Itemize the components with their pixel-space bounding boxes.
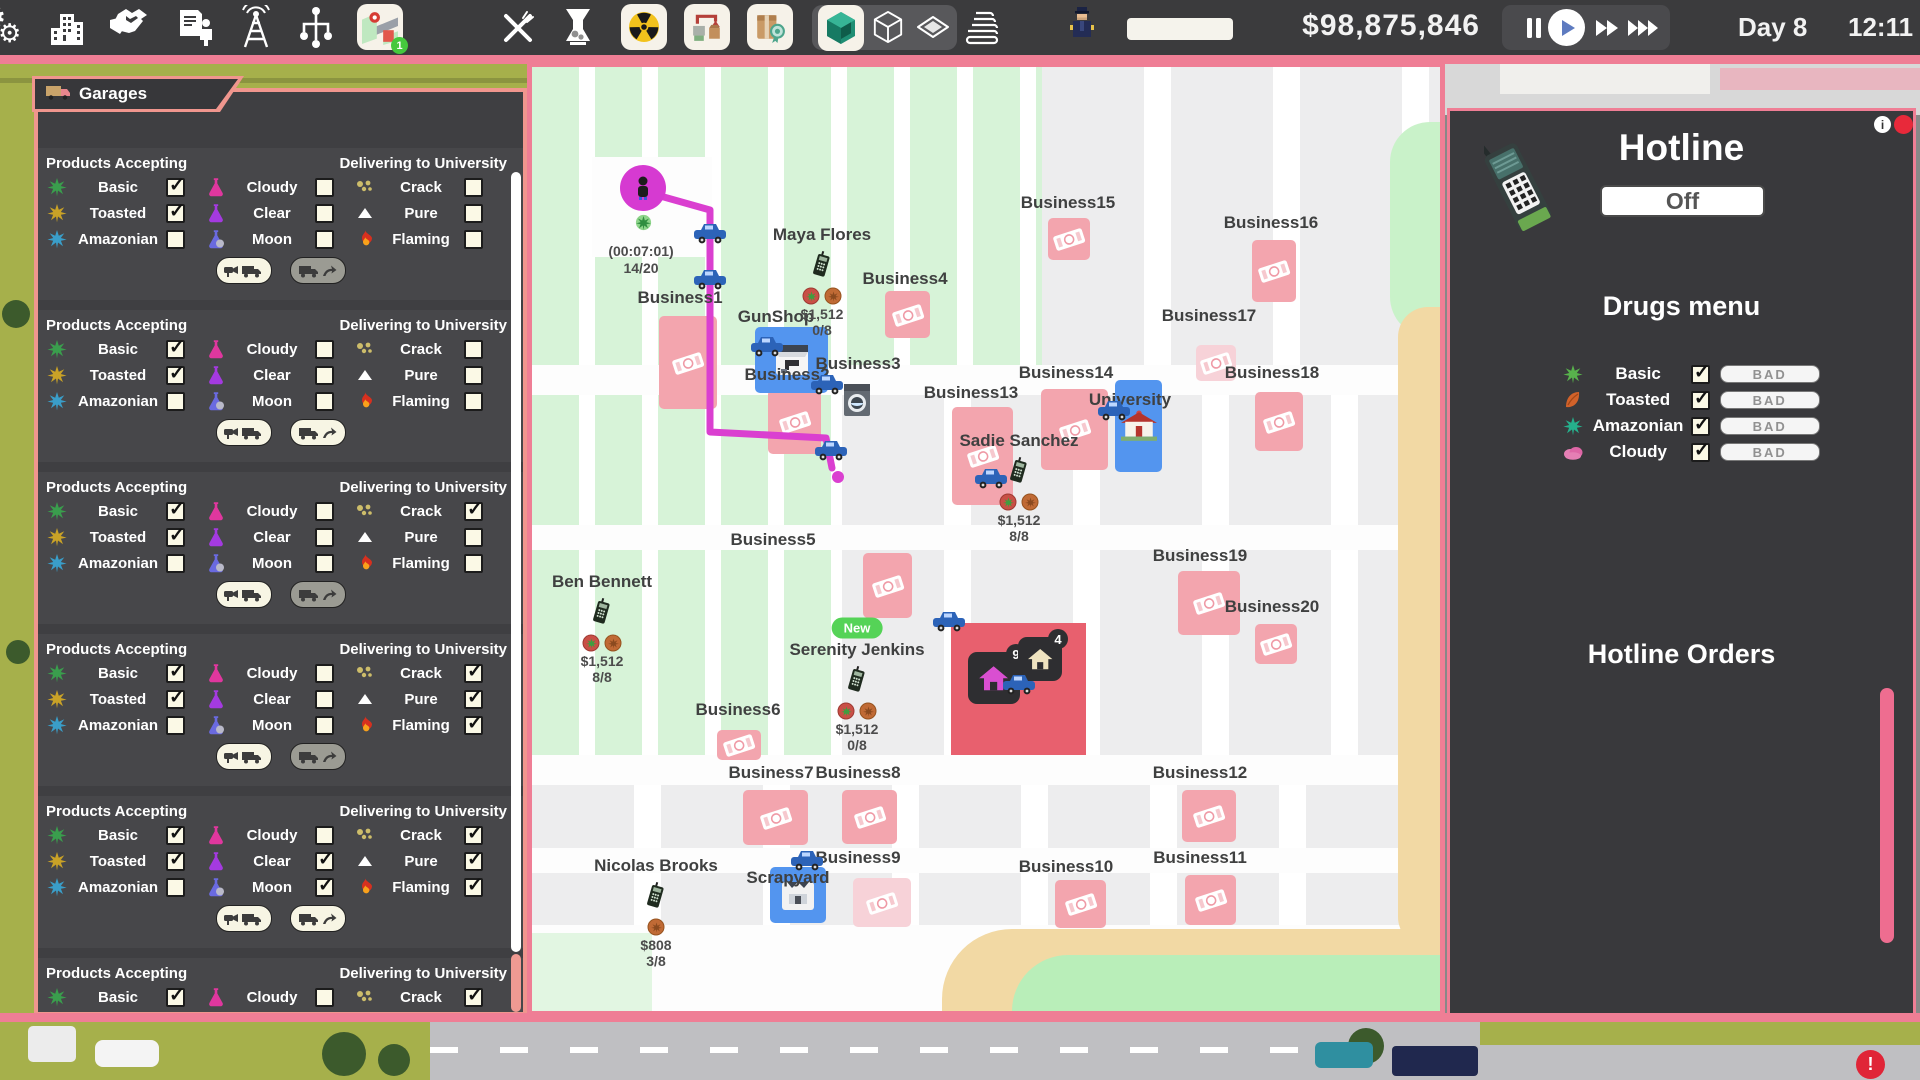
- flask-purple-icon: [203, 527, 229, 547]
- cutlery-icon[interactable]: [500, 10, 536, 46]
- checkbox-pure[interactable]: [464, 852, 483, 871]
- checkbox-crack[interactable]: [464, 826, 483, 845]
- delivering-label: Delivering to University: [339, 803, 507, 820]
- basic-coin-icon: [583, 635, 600, 652]
- products-accepting-label: Products Accepting: [46, 155, 187, 172]
- checkbox-moon[interactable]: [315, 230, 334, 249]
- checkbox-toasted[interactable]: [1691, 391, 1710, 410]
- cube-green-button[interactable]: [818, 5, 864, 51]
- checkbox-clear[interactable]: [315, 366, 334, 385]
- dealer-coins: [838, 703, 877, 720]
- drug-row: AmazonianBAD: [1560, 413, 1820, 439]
- product-label: Clear: [229, 367, 315, 384]
- time-speed-controls: [1502, 5, 1670, 50]
- product-label: Amazonian: [70, 231, 166, 248]
- crumbs-icon: [352, 341, 378, 357]
- flask-moon-icon: [203, 715, 229, 735]
- dealer-ratio: 0/8: [847, 737, 866, 753]
- triangle-icon: [352, 206, 378, 220]
- drug-row: CloudyBAD: [1560, 439, 1820, 465]
- send-truck-button[interactable]: [290, 743, 346, 770]
- crumbs-icon: [352, 989, 378, 1005]
- leaf-green-icon: [44, 663, 70, 683]
- white-car: [95, 1040, 159, 1067]
- basic-coin-icon: [1000, 494, 1017, 511]
- dealer-label: Serenity Jenkins: [789, 640, 924, 660]
- garage-section-header: Products AcceptingDelivering to Universi…: [38, 310, 523, 336]
- checkbox-toasted[interactable]: [166, 528, 185, 547]
- checkbox-amazonian[interactable]: [166, 230, 185, 249]
- product-label: Crack: [378, 179, 464, 196]
- business-label: Business19: [1153, 546, 1248, 566]
- product-icon: [754, 11, 786, 43]
- checkbox-toasted[interactable]: [166, 204, 185, 223]
- hotline-panel: i Hotline Off Drugs menu BasicBADToasted…: [1447, 108, 1916, 1016]
- flask-moon-icon: [203, 553, 229, 573]
- toasted-coin-icon: [825, 288, 842, 305]
- triangle-icon: [352, 854, 378, 868]
- product-label: Basic: [70, 665, 166, 682]
- product-label: Amazonian: [70, 717, 166, 734]
- fastest-forward-button[interactable]: [1624, 5, 1664, 50]
- window-top-border: [0, 55, 1920, 64]
- dealer-label: Ben Bennett: [552, 572, 652, 592]
- world-grass-left: [0, 88, 34, 1018]
- leaf-blue-icon: [44, 391, 70, 411]
- drug-row: ToastedBAD: [1560, 387, 1820, 413]
- dealer-price: $808: [640, 937, 671, 953]
- product-label: Toasted: [70, 205, 166, 222]
- product-label: Clear: [229, 691, 315, 708]
- car-icon: [974, 467, 1008, 494]
- play-button[interactable]: [1548, 9, 1585, 46]
- business-label: Business8: [815, 763, 900, 783]
- checkbox-flaming[interactable]: [464, 716, 483, 735]
- leaf-yellow-icon: [44, 365, 70, 385]
- checkbox-cloudy[interactable]: [1691, 443, 1710, 462]
- dealer-ratio: 3/8: [646, 953, 665, 969]
- leaf-green-icon: [44, 987, 70, 1007]
- garage-section: Products AcceptingDelivering to Universi…: [38, 958, 523, 1012]
- send-truck-button[interactable]: [290, 257, 346, 284]
- dealer-coins: [583, 635, 622, 652]
- camera-truck-button[interactable]: [216, 419, 272, 446]
- checkbox-cloudy[interactable]: [315, 988, 334, 1007]
- product-button[interactable]: [747, 4, 793, 50]
- white-van: [28, 1026, 76, 1062]
- garage-section: Products AcceptingDelivering to Universi…: [38, 148, 523, 300]
- business-label: Business7: [728, 763, 813, 783]
- checkbox-basic[interactable]: [166, 502, 185, 521]
- product-label: Amazonian: [70, 555, 166, 572]
- product-label: Cloudy: [229, 665, 315, 682]
- checkbox-pure[interactable]: [464, 204, 483, 223]
- garage-row: AmazonianMoonFlaming: [38, 388, 523, 414]
- leaf-blue-icon: [44, 553, 70, 573]
- flask-moon-icon: [203, 391, 229, 411]
- garage-row: ToastedClearPure: [38, 686, 523, 712]
- product-label: Pure: [378, 853, 464, 870]
- garages-tab[interactable]: Garages: [32, 76, 244, 112]
- product-label: Crack: [378, 827, 464, 844]
- dealer-price: $1,512: [998, 512, 1041, 528]
- business-label: Business18: [1225, 363, 1320, 383]
- player-timer: (00:07:01): [608, 243, 673, 259]
- checkbox-cloudy[interactable]: [315, 826, 334, 845]
- leaf-green-icon: [44, 825, 70, 845]
- route-destination-dot: [832, 471, 844, 483]
- toasted-coin-icon: [860, 703, 877, 720]
- business-label: Business9: [815, 848, 900, 868]
- product-label: Basic: [70, 179, 166, 196]
- checkbox-amazonian[interactable]: [1691, 417, 1710, 436]
- player-capacity: 14/20: [623, 260, 658, 276]
- crumbs-icon: [352, 827, 378, 843]
- dealer-label: Nicolas Brooks: [594, 856, 718, 876]
- garage-row: BasicCloudyCrack: [38, 336, 523, 362]
- checkbox-crack[interactable]: [464, 664, 483, 683]
- product-label: Toasted: [70, 691, 166, 708]
- police-icon[interactable]: [1068, 6, 1096, 48]
- flask-pink-icon: [203, 663, 229, 683]
- grinder-icon[interactable]: [564, 8, 592, 46]
- garage-buttons: [38, 257, 523, 284]
- garages-scrollbar-track[interactable]: [511, 954, 521, 1012]
- checkbox-flaming[interactable]: [464, 878, 483, 897]
- business-label: Business10: [1019, 857, 1114, 877]
- products-accepting-label: Products Accepting: [46, 803, 187, 820]
- car-icon: [932, 610, 966, 637]
- checkbox-basic[interactable]: [166, 340, 185, 359]
- books-icon[interactable]: [962, 7, 1002, 47]
- drug-label: Amazonian: [1589, 416, 1687, 436]
- business-label: Business13: [924, 383, 1019, 403]
- product-label: Amazonian: [70, 879, 166, 896]
- dealer-ratio: 8/8: [1009, 528, 1028, 544]
- antenna-icon[interactable]: [236, 5, 276, 49]
- product-label: Moon: [229, 393, 315, 410]
- flame-icon: [352, 878, 378, 896]
- fast-forward-button[interactable]: [1592, 5, 1622, 50]
- product-label: Pure: [378, 205, 464, 222]
- flask-moon-icon: [203, 229, 229, 249]
- garage-row: ToastedClearPure: [38, 362, 523, 388]
- product-label: Cloudy: [229, 179, 315, 196]
- garage-row: BasicCloudyCrack: [38, 660, 523, 686]
- road-markings: [430, 1047, 1330, 1053]
- product-label: Flaming: [378, 879, 464, 896]
- flask-pink-icon: [203, 825, 229, 845]
- checkbox-toasted[interactable]: [166, 690, 185, 709]
- basic-coin-icon: [838, 703, 855, 720]
- checkbox-cloudy[interactable]: [315, 340, 334, 359]
- product-label: Crack: [378, 665, 464, 682]
- teal-car: [1315, 1042, 1373, 1068]
- delivering-label: Delivering to University: [339, 479, 507, 496]
- toasted-coin-icon: [648, 919, 665, 936]
- garage-row: ToastedClearPure: [38, 200, 523, 226]
- world-building: [1500, 60, 1710, 94]
- checkbox-cloudy[interactable]: [315, 502, 334, 521]
- processing-icon: [691, 11, 723, 43]
- player-drop-icon: [636, 215, 651, 230]
- checkbox-flaming[interactable]: [464, 554, 483, 573]
- dealer-ratio: 8/8: [592, 669, 611, 685]
- dealer-coins: [803, 288, 842, 305]
- checkbox-flaming[interactable]: [464, 230, 483, 249]
- checkbox-toasted[interactable]: [166, 852, 185, 871]
- cube-white-icon[interactable]: [872, 10, 904, 44]
- dealer-price: $1,512: [581, 653, 624, 669]
- product-label: Flaming: [378, 231, 464, 248]
- checkbox-cloudy[interactable]: [315, 178, 334, 197]
- drug-row: BasicBAD: [1560, 361, 1820, 387]
- leaf-green-icon: [44, 339, 70, 359]
- garage-row: AmazonianMoonFlaming: [38, 226, 523, 252]
- garage-row: BasicCloudyCrack: [38, 498, 523, 524]
- leaf-green-icon: [44, 177, 70, 197]
- bad-button-cloudy[interactable]: BAD: [1720, 443, 1821, 461]
- pause-button[interactable]: [1520, 5, 1548, 50]
- product-label: Crack: [378, 989, 464, 1006]
- checkbox-amazonian[interactable]: [166, 554, 185, 573]
- radiation-button[interactable]: [621, 4, 667, 50]
- money-display: $98,875,846: [1302, 9, 1480, 43]
- tree: [2, 300, 30, 328]
- flask-pink-icon: [203, 987, 229, 1007]
- bad-button-basic[interactable]: BAD: [1720, 365, 1821, 383]
- drugs-menu-title: Drugs menu: [1450, 291, 1913, 322]
- business-label: Business12: [1153, 763, 1248, 783]
- dealer-coins: [1000, 494, 1039, 511]
- checkbox-pure[interactable]: [464, 366, 483, 385]
- garage-section: Products AcceptingDelivering to Universi…: [38, 310, 523, 462]
- handshake-icon[interactable]: [108, 8, 152, 48]
- product-label: Toasted: [70, 853, 166, 870]
- business-label: Business6: [695, 700, 780, 720]
- products-accepting-label: Products Accepting: [46, 965, 187, 982]
- garage-buttons: [38, 743, 523, 770]
- checkbox-crack[interactable]: [464, 502, 483, 521]
- triangle-icon: [352, 530, 378, 544]
- dealer-price: $1,512: [836, 721, 879, 737]
- camera-truck-button[interactable]: [216, 743, 272, 770]
- camera-truck-button[interactable]: [216, 581, 272, 608]
- map-badge: 1: [391, 37, 408, 54]
- flask-purple-icon: [203, 365, 229, 385]
- business-label: Business16: [1224, 213, 1319, 233]
- leaf-blue-icon: [44, 715, 70, 735]
- checkbox-moon[interactable]: [315, 392, 334, 411]
- map-button[interactable]: 1: [357, 4, 403, 50]
- triangle-icon: [352, 692, 378, 706]
- city-map[interactable]: Business1Business2Business3Business4Busi…: [532, 67, 1440, 1011]
- product-label: Pure: [378, 529, 464, 546]
- leaf-yellow-icon: [44, 527, 70, 547]
- tree: [378, 1044, 410, 1076]
- window-bottom-border: [0, 1013, 1920, 1022]
- garage-row: BasicCloudyCrack: [38, 984, 523, 1010]
- product-label: Cloudy: [229, 341, 315, 358]
- flask-purple-icon: [203, 203, 229, 223]
- garage-row: BasicCloudyCrack: [38, 174, 523, 200]
- hotline-scrollbar[interactable]: [1880, 688, 1894, 943]
- garage-section-header: Products AcceptingDelivering to Universi…: [38, 148, 523, 174]
- dealer-price: $1,512: [801, 306, 844, 322]
- flask-pink-icon: [203, 339, 229, 359]
- dealer-ratio: 0/8: [812, 322, 831, 338]
- checkbox-amazonian[interactable]: [166, 716, 185, 735]
- garage-section-header: Products AcceptingDelivering to Universi…: [38, 634, 523, 660]
- checkbox-cloudy[interactable]: [315, 664, 334, 683]
- leaf-blue-icon: [44, 877, 70, 897]
- product-label: Amazonian: [70, 393, 166, 410]
- checkbox-clear[interactable]: [315, 690, 334, 709]
- crumbs-icon: [352, 179, 378, 195]
- car-icon: [693, 268, 727, 295]
- checkbox-basic[interactable]: [166, 664, 185, 683]
- garage-section-header: Products AcceptingDelivering to Universi…: [38, 472, 523, 498]
- delivering-label: Delivering to University: [339, 155, 507, 172]
- cloud-icon: [1560, 444, 1585, 460]
- flask-purple-icon: [203, 851, 229, 871]
- car-icon: [790, 849, 824, 876]
- truck-icon: [1002, 673, 1036, 700]
- checkbox-moon[interactable]: [315, 554, 334, 573]
- radiation-icon: [628, 11, 660, 43]
- product-label: Clear: [229, 853, 315, 870]
- checkbox-flaming[interactable]: [464, 392, 483, 411]
- checkbox-pure[interactable]: [464, 528, 483, 547]
- truck-icon: [45, 84, 71, 105]
- product-label: Clear: [229, 529, 315, 546]
- network-icon[interactable]: [296, 6, 336, 48]
- product-label: Pure: [378, 367, 464, 384]
- product-label: Cloudy: [229, 989, 315, 1006]
- leaf-yellow-icon: [44, 689, 70, 709]
- business-label: Business5: [730, 530, 815, 550]
- delivering-label: Delivering to University: [339, 317, 507, 334]
- garages-panel: Products AcceptingDelivering to Universi…: [34, 88, 527, 1016]
- checkbox-moon[interactable]: [315, 878, 334, 897]
- product-label: Flaming: [378, 393, 464, 410]
- garage-section-header: Products AcceptingDelivering to Universi…: [38, 958, 523, 984]
- delivering-label: Delivering to University: [339, 965, 507, 982]
- alert-icon[interactable]: !: [1856, 1050, 1885, 1079]
- processing-button[interactable]: [684, 4, 730, 50]
- product-label: Crack: [378, 341, 464, 358]
- products-accepting-label: Products Accepting: [46, 317, 187, 334]
- flask-pink-icon: [203, 177, 229, 197]
- car-icon: [1097, 399, 1131, 426]
- product-label: Basic: [70, 827, 166, 844]
- bad-button-amazonian[interactable]: BAD: [1720, 417, 1821, 435]
- product-label: Toasted: [70, 367, 166, 384]
- diamond-icon[interactable]: [916, 16, 950, 38]
- basic-coin-icon: [803, 288, 820, 305]
- tree: [6, 640, 30, 664]
- checkbox-crack[interactable]: [464, 988, 483, 1007]
- business-label: Business3: [815, 354, 900, 374]
- product-label: Pure: [378, 691, 464, 708]
- garage-row: AmazonianMoonFlaming: [38, 712, 523, 738]
- player-marker[interactable]: [620, 165, 666, 211]
- send-truck-button[interactable]: [290, 419, 346, 446]
- checkbox-clear[interactable]: [315, 204, 334, 223]
- navy-truck: [1392, 1046, 1478, 1076]
- checkbox-amazonian[interactable]: [166, 878, 185, 897]
- flask-purple-icon: [203, 689, 229, 709]
- leaf-amazonian-icon: [1560, 416, 1585, 436]
- flame-icon: [352, 230, 378, 248]
- garage-buttons: [38, 419, 523, 446]
- contract-icon[interactable]: [176, 8, 216, 48]
- camera-truck-button[interactable]: [216, 905, 272, 932]
- send-truck-button[interactable]: [290, 905, 346, 932]
- leaf-blue-icon: [44, 229, 70, 249]
- checkbox-clear[interactable]: [315, 852, 334, 871]
- flame-icon: [352, 392, 378, 410]
- hotline-orders-title: Hotline Orders: [1450, 639, 1913, 670]
- hotline-toggle-button[interactable]: Off: [1600, 185, 1765, 217]
- checkbox-amazonian[interactable]: [166, 392, 185, 411]
- business-label: Business20: [1225, 597, 1320, 617]
- business-label: Business14: [1019, 363, 1114, 383]
- products-accepting-label: Products Accepting: [46, 641, 187, 658]
- checkbox-basic[interactable]: [1691, 365, 1710, 384]
- police-progress-bar: [1127, 18, 1233, 40]
- product-label: Cloudy: [229, 503, 315, 520]
- day-label: Day 8: [1738, 12, 1807, 43]
- checkbox-crack[interactable]: [464, 178, 483, 197]
- checkbox-pure[interactable]: [464, 690, 483, 709]
- checkbox-crack[interactable]: [464, 340, 483, 359]
- product-label: Moon: [229, 717, 315, 734]
- business-label: Business11: [1153, 848, 1247, 868]
- checkbox-basic[interactable]: [166, 988, 185, 1007]
- gears-icon[interactable]: ⚙⚙: [0, 6, 34, 50]
- business-label: Business4: [862, 269, 947, 289]
- hotline-title: Hotline: [1450, 127, 1913, 169]
- garages-scrollbar[interactable]: [511, 172, 521, 952]
- drug-label: Cloudy: [1589, 442, 1687, 462]
- drug-label: Basic: [1589, 364, 1687, 384]
- business-label: Business15: [1021, 193, 1116, 213]
- city-map-window[interactable]: Business1Business2Business3Business4Busi…: [527, 62, 1445, 1016]
- leaf-yellow-icon: [44, 203, 70, 223]
- bad-button-toasted[interactable]: BAD: [1720, 391, 1821, 409]
- product-label: Clear: [229, 205, 315, 222]
- checkbox-clear[interactable]: [315, 528, 334, 547]
- garage-buttons: [38, 905, 523, 932]
- checkbox-toasted[interactable]: [166, 366, 185, 385]
- leaf-green-icon: [44, 501, 70, 521]
- camera-truck-button[interactable]: [216, 257, 272, 284]
- garage-row: ToastedClearPure: [38, 524, 523, 550]
- game-screen: ! $98,875,846 Day 8 12:11 ⚙⚙1: [0, 0, 1920, 1080]
- world-walkway: [1720, 68, 1920, 90]
- leaf-toasted-icon: [1560, 390, 1585, 410]
- garage-section: Products AcceptingDelivering to Universi…: [38, 796, 523, 948]
- send-truck-button[interactable]: [290, 581, 346, 608]
- leaf-basic-icon: [1560, 364, 1585, 384]
- city-icon[interactable]: [48, 8, 88, 48]
- checkbox-basic[interactable]: [166, 178, 185, 197]
- flame-icon: [352, 554, 378, 572]
- product-label: Flaming: [378, 555, 464, 572]
- checkbox-basic[interactable]: [166, 826, 185, 845]
- checkbox-moon[interactable]: [315, 716, 334, 735]
